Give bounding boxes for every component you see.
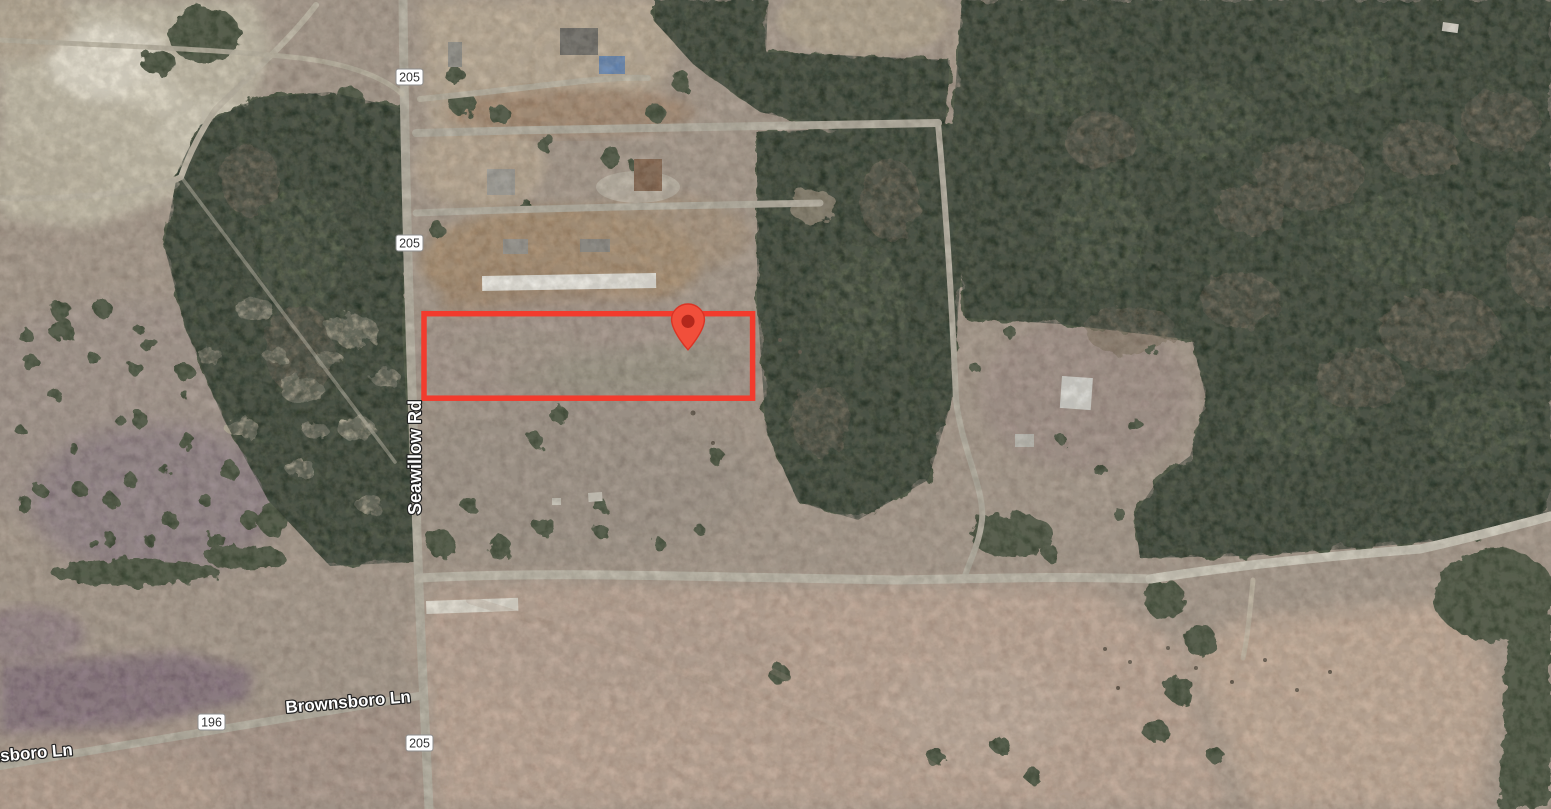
svg-text:Seawillow Rd: Seawillow Rd — [405, 400, 425, 515]
svg-text:205: 205 — [399, 237, 420, 251]
svg-text:196: 196 — [201, 716, 222, 730]
svg-text:205: 205 — [409, 737, 430, 751]
svg-text:205: 205 — [399, 71, 420, 85]
